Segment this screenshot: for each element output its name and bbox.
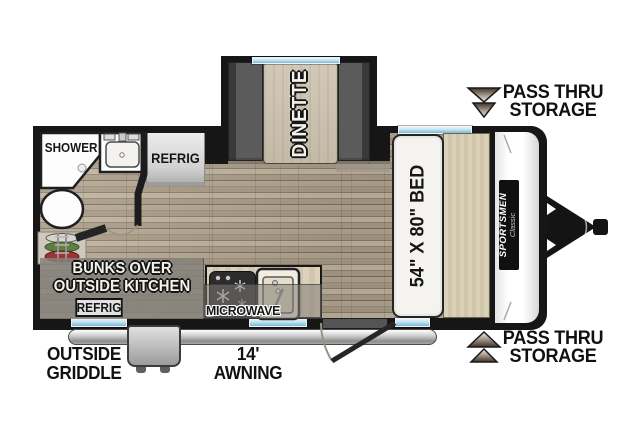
- shower-label: SHOWER: [45, 140, 95, 155]
- dinette-label: DINETTE: [263, 62, 338, 164]
- bathroom-door: [76, 228, 106, 238]
- entry-door-swing-arc: [321, 323, 332, 361]
- pass-thru-bottom-line2: STORAGE: [499, 348, 607, 366]
- entry-door-panel: [332, 323, 395, 361]
- dinette-bench-right: [338, 62, 370, 161]
- window-rear-door-side: [71, 318, 127, 327]
- griddle-foot: [136, 367, 146, 373]
- refrigerator-label: REFRIG: [148, 133, 202, 183]
- bunks-label-line2: OUTSIDE KITCHEN: [46, 278, 199, 296]
- griddle-foot: [160, 367, 170, 373]
- entry-door: [295, 314, 410, 370]
- pass-thru-top-line1: PASS THRU: [499, 84, 607, 102]
- window-slideout: [252, 57, 340, 64]
- bed-label: 54" X 80" BED: [392, 134, 444, 318]
- pass-thru-arrow-down-icon: [466, 86, 502, 120]
- rv-floorplan: DINETTE REFRIG SHOWER 54" X 80" BED: [0, 0, 640, 429]
- pass-thru-arrow-up-icon: [466, 331, 502, 365]
- outside-griddle: [127, 325, 181, 367]
- bathroom-door-swing-arc: [106, 225, 138, 235]
- wall-stub-right-of-slide: [369, 126, 390, 164]
- awning-line1: 14': [201, 345, 296, 364]
- wall-stub-left-of-slide: [205, 126, 228, 164]
- pass-thru-bottom-line1: PASS THRU: [499, 330, 607, 348]
- bed-label-text: 54" X 80" BED: [407, 165, 429, 287]
- hitch: [540, 190, 612, 266]
- dinette-bench-left: [228, 62, 263, 161]
- toilet: [41, 190, 83, 228]
- brand-logo-series: Classic: [509, 180, 517, 270]
- bunks-label-line1: BUNKS OVER: [46, 260, 199, 278]
- bunks-label: BUNKS OVER OUTSIDE KITCHEN: [46, 260, 199, 295]
- awning-label: 14' AWNING: [201, 345, 296, 383]
- griddle-line2: GRIDDLE: [38, 364, 129, 383]
- dinette-label-text: DINETTE: [289, 69, 312, 157]
- pass-thru-storage-bottom-label: PASS THRU STORAGE: [499, 330, 607, 365]
- brand-logo: SPORTSMEN Classic: [499, 180, 519, 270]
- awning-line2: AWNING: [201, 364, 296, 383]
- griddle-line1: OUTSIDE: [38, 345, 129, 364]
- shower-drain: [78, 164, 86, 172]
- hitch-tongue: [547, 196, 596, 258]
- pass-thru-storage-top-label: PASS THRU STORAGE: [499, 84, 607, 119]
- outside-griddle-label: OUTSIDE GRIDDLE: [38, 345, 129, 383]
- hitch-coupler: [593, 219, 608, 235]
- outside-refrigerator-badge: REFRIG: [75, 298, 123, 317]
- pass-thru-top-line2: STORAGE: [499, 102, 607, 120]
- bed-headboard: [443, 133, 490, 318]
